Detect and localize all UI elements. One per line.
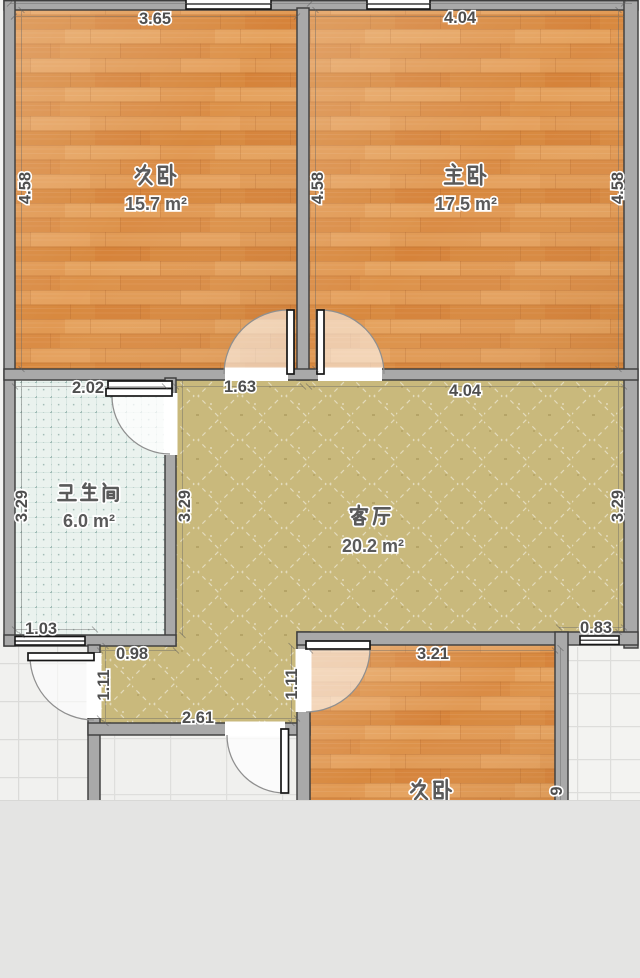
svg-text:17.5 m²: 17.5 m² — [435, 194, 497, 214]
svg-text:3.29: 3.29 — [13, 490, 31, 522]
svg-text:1.11: 1.11 — [283, 668, 301, 699]
svg-text:4.58: 4.58 — [609, 172, 627, 204]
svg-text:3.29: 3.29 — [609, 490, 627, 522]
svg-text:3.29: 3.29 — [176, 490, 194, 522]
svg-text:4.58: 4.58 — [16, 172, 34, 204]
svg-text:3.21: 3.21 — [417, 645, 449, 663]
svg-text:3.65: 3.65 — [139, 10, 171, 28]
svg-text:2.61: 2.61 — [182, 709, 214, 727]
svg-text:9: 9 — [548, 786, 566, 795]
svg-text:1.63: 1.63 — [224, 378, 256, 396]
svg-text:4.58: 4.58 — [309, 172, 327, 204]
svg-text:0.83: 0.83 — [580, 619, 612, 637]
svg-text:4.04: 4.04 — [444, 9, 477, 27]
svg-text:15.7 m²: 15.7 m² — [125, 194, 187, 214]
svg-text:4.04: 4.04 — [449, 382, 482, 400]
svg-text:1.11: 1.11 — [95, 669, 113, 700]
svg-text:1.03: 1.03 — [25, 620, 57, 638]
svg-text:20.2 m²: 20.2 m² — [342, 536, 404, 556]
svg-text:2.02: 2.02 — [72, 379, 104, 397]
svg-text:0.98: 0.98 — [116, 645, 148, 663]
svg-text:6.0 m²: 6.0 m² — [63, 511, 115, 531]
